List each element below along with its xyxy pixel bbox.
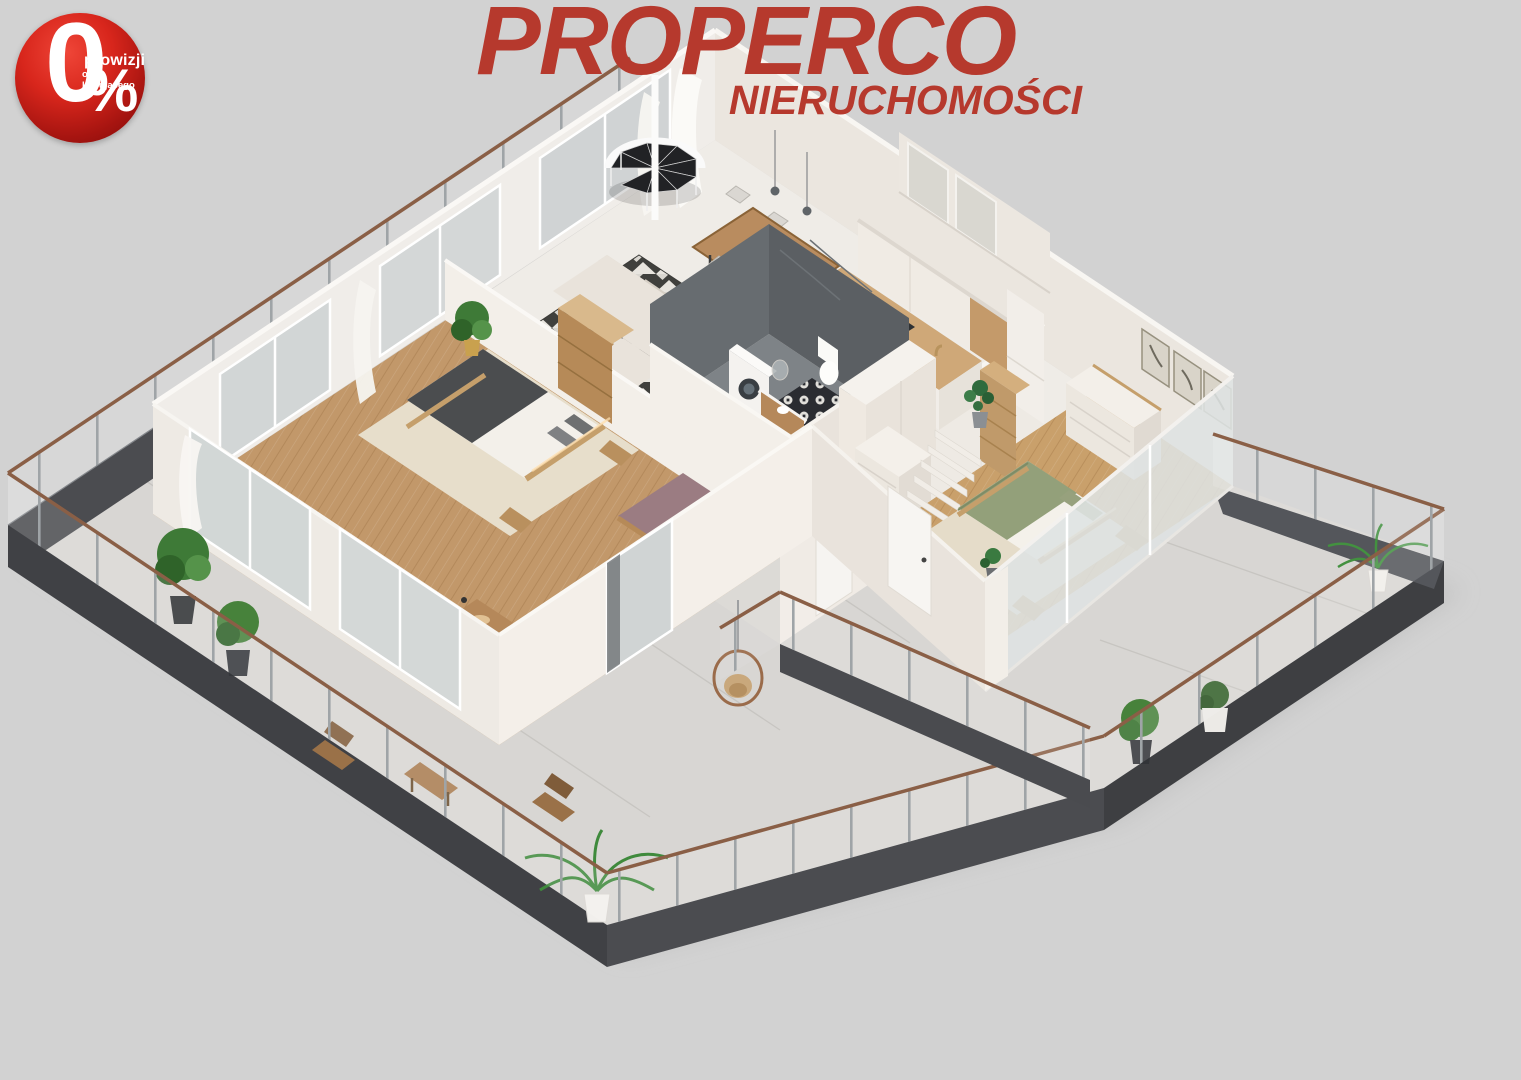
door-handle (922, 558, 927, 563)
commission-badge: 0 % prowizji od kupującego (15, 13, 145, 143)
dark-curtain (607, 554, 620, 673)
floorplan-3d-render (0, 0, 1521, 1080)
badge-line2: od kupującego (82, 69, 145, 91)
badge-line1: prowizji (84, 52, 145, 70)
pendant-lamp (803, 207, 812, 216)
logo-subtitle: NIERUCHOMOŚCI (470, 80, 1138, 121)
logo-title: PROPERCO (476, 0, 1015, 89)
mirror (772, 360, 788, 380)
pendant-lamp (771, 187, 780, 196)
property-listing-render: 0 % prowizji od kupującego PROPERCO NIER… (0, 0, 1521, 1080)
wall-end-pillar (985, 566, 1008, 691)
desk-lamp (461, 597, 467, 603)
